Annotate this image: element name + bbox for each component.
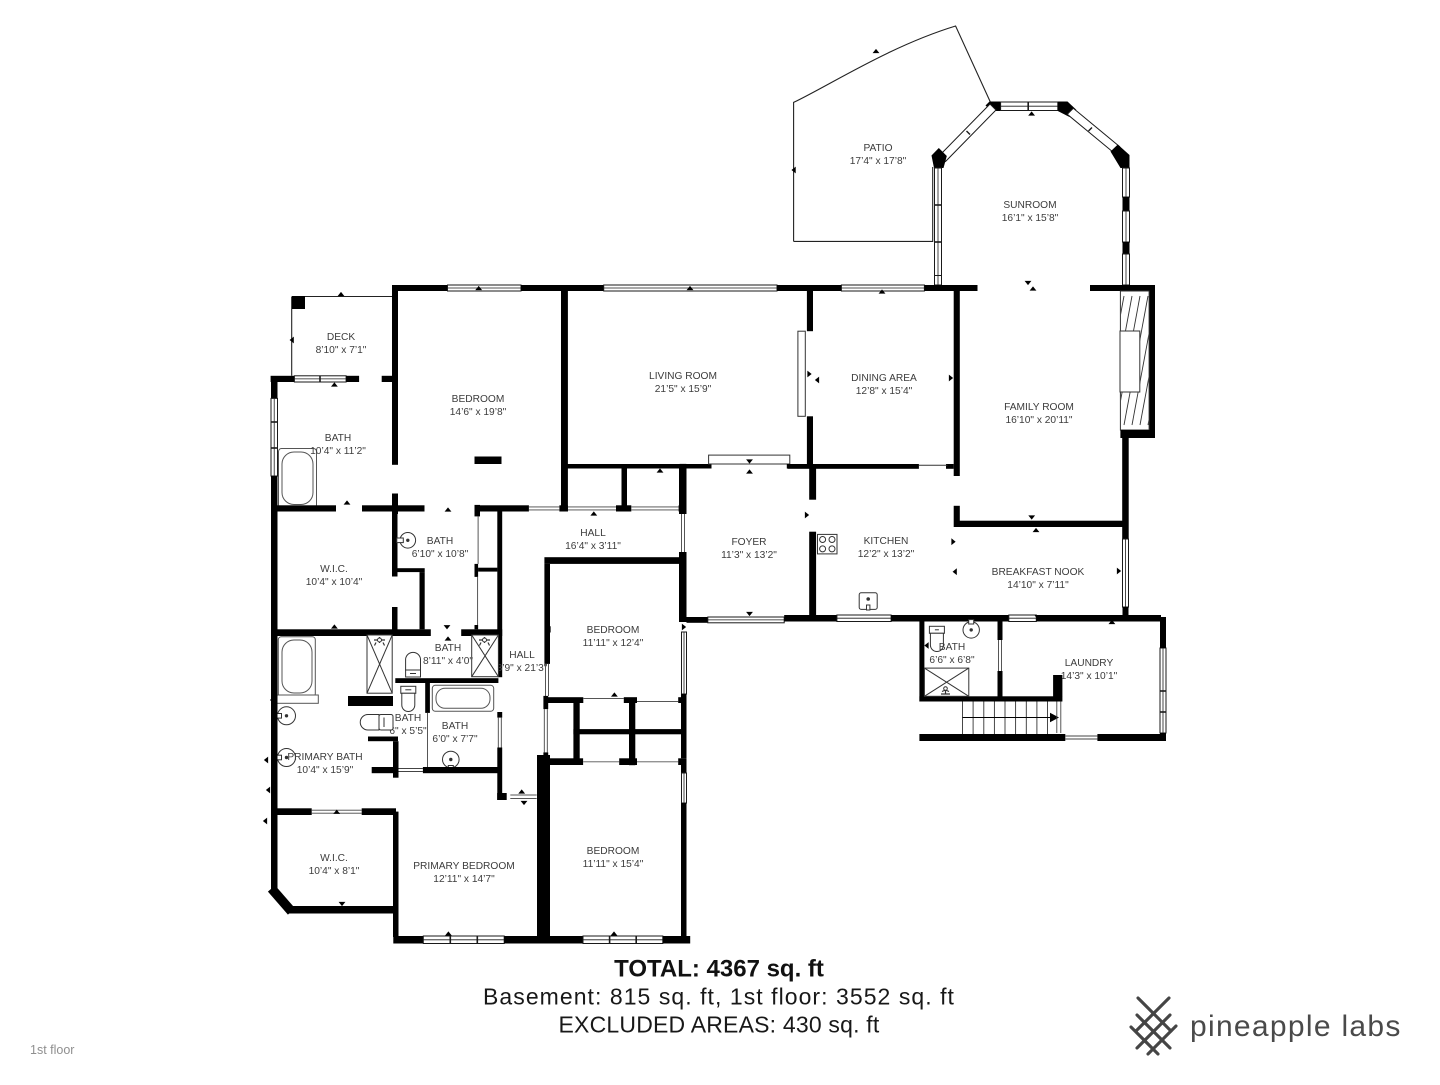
svg-text:KITCHEN: KITCHEN — [864, 536, 909, 547]
svg-text:BATH: BATH — [395, 713, 421, 724]
svg-text:BATH: BATH — [435, 643, 461, 654]
svg-text:BATH: BATH — [442, 721, 468, 732]
svg-text:pineapple labs: pineapple labs — [1190, 1010, 1402, 1043]
svg-text:BEDROOM: BEDROOM — [452, 394, 505, 405]
svg-text:11’11" x 15’4": 11’11" x 15’4" — [583, 859, 644, 870]
svg-text:10’4" x 8’1": 10’4" x 8’1" — [309, 866, 360, 877]
svg-text:PATIO: PATIO — [863, 143, 892, 154]
svg-text:12’11" x 14’7": 12’11" x 14’7" — [433, 874, 495, 885]
svg-text:14’10" x 7’11": 14’10" x 7’11" — [1007, 580, 1069, 591]
svg-text:8’11" x 4’0": 8’11" x 4’0" — [423, 656, 473, 667]
svg-text:14’3" x 10’1": 14’3" x 10’1" — [1061, 671, 1118, 682]
svg-text:6’6" x 6’8": 6’6" x 6’8" — [929, 655, 975, 666]
svg-text:16’10" x 20’11": 16’10" x 20’11" — [1005, 415, 1072, 426]
svg-text:BEDROOM: BEDROOM — [587, 625, 640, 636]
svg-text:W.I.C.: W.I.C. — [320, 853, 348, 864]
svg-text:6’0" x 7’7": 6’0" x 7’7" — [432, 734, 478, 745]
svg-text:HALL: HALL — [580, 528, 606, 539]
svg-text:LIVING ROOM: LIVING ROOM — [649, 371, 717, 382]
svg-text:TOTAL: 4367 sq. ft: TOTAL: 4367 sq. ft — [614, 956, 824, 983]
svg-text:BREAKFAST NOOK: BREAKFAST NOOK — [992, 567, 1085, 578]
svg-text:EXCLUDED AREAS: 430 sq. ft: EXCLUDED AREAS: 430 sq. ft — [559, 1012, 880, 1038]
svg-text:16’1" x 15’8": 16’1" x 15’8" — [1002, 213, 1059, 224]
svg-text:11’3" x 13’2": 11’3" x 13’2" — [721, 550, 777, 561]
svg-text:11’11" x 12’4": 11’11" x 12’4" — [583, 638, 644, 649]
svg-text:BEDROOM: BEDROOM — [587, 846, 640, 857]
svg-text:10’4" x 15’9": 10’4" x 15’9" — [297, 765, 354, 776]
svg-text:SUNROOM: SUNROOM — [1003, 200, 1056, 211]
svg-text:14’6" x 19’8": 14’6" x 19’8" — [450, 407, 507, 418]
svg-text:16’4" x 3’11": 16’4" x 3’11" — [565, 541, 621, 552]
svg-text:W.I.C.: W.I.C. — [320, 564, 348, 575]
svg-text:PRIMARY BATH: PRIMARY BATH — [287, 752, 362, 763]
svg-text:HALL: HALL — [509, 650, 535, 661]
svg-text:BATH: BATH — [325, 433, 351, 444]
svg-text:10’4" x 10’4": 10’4" x 10’4" — [306, 577, 363, 588]
svg-text:BATH: BATH — [939, 642, 965, 653]
svg-text:10’4" x 11’2": 10’4" x 11’2" — [310, 446, 366, 457]
svg-text:FOYER: FOYER — [731, 537, 766, 548]
svg-text:Basement: 815 sq. ft, 1st floo: Basement: 815 sq. ft, 1st floor: 3552 sq… — [483, 984, 955, 1010]
svg-text:3’9" x 21’3": 3’9" x 21’3" — [497, 663, 548, 674]
svg-text:BATH: BATH — [427, 536, 453, 547]
svg-text:1st floor: 1st floor — [30, 1043, 74, 1057]
svg-text:DECK: DECK — [327, 332, 356, 343]
svg-text:12’2" x 13’2": 12’2" x 13’2" — [858, 549, 915, 560]
svg-text:6’10" x 10’8": 6’10" x 10’8" — [412, 549, 469, 560]
svg-text:8’10" x 7’1": 8’10" x 7’1" — [316, 345, 367, 356]
svg-text:12’8" x 15’4": 12’8" x 15’4" — [856, 386, 913, 397]
svg-text:PRIMARY BEDROOM: PRIMARY BEDROOM — [413, 861, 515, 872]
svg-text:17’4" x 17’8": 17’4" x 17’8" — [850, 156, 907, 167]
svg-text:DINING AREA: DINING AREA — [851, 373, 917, 384]
svg-text:6" x 5’5": 6" x 5’5" — [389, 726, 427, 737]
svg-text:LAUNDRY: LAUNDRY — [1065, 658, 1114, 669]
svg-text:21’5" x 15’9": 21’5" x 15’9" — [655, 384, 712, 395]
svg-text:FAMILY ROOM: FAMILY ROOM — [1004, 402, 1074, 413]
